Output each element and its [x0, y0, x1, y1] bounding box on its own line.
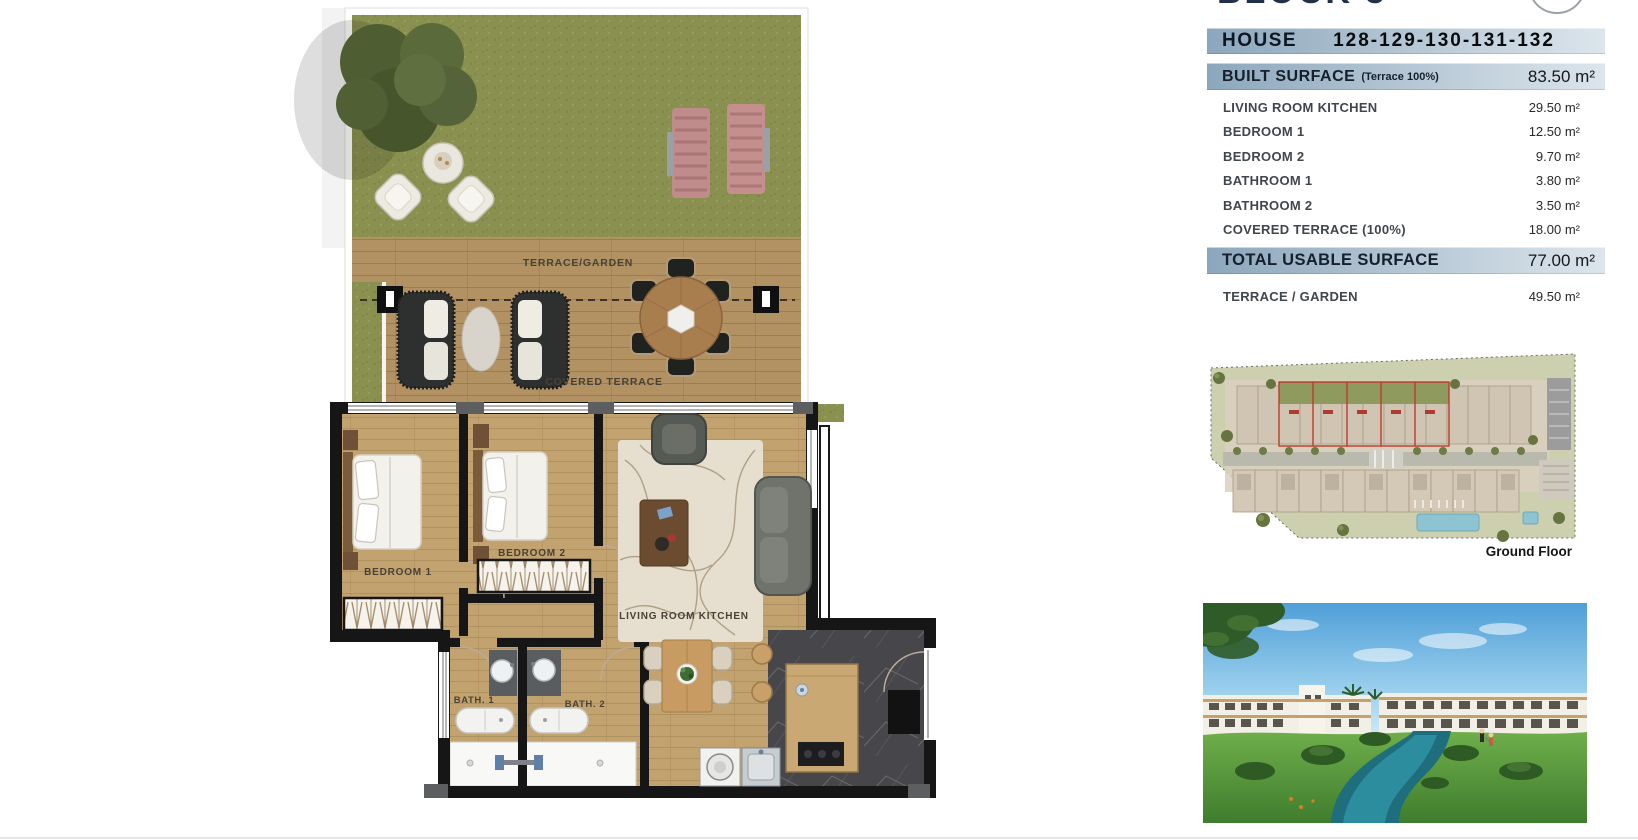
row-label: COVERED TERRACE (100%)	[1223, 222, 1406, 237]
compass-icon	[1528, 0, 1586, 14]
house-header-bar: HOUSE 128-129-130-131-132	[1207, 28, 1605, 54]
block-title: BLOCK 3	[1217, 0, 1387, 12]
row-label: BEDROOM 2	[1223, 149, 1304, 164]
row-label: BATHROOM 2	[1223, 198, 1312, 213]
row-value: 12.50 m²	[1529, 124, 1580, 139]
row-value: 9.70 m²	[1536, 149, 1580, 164]
built-surface-note: (Terrace 100%)	[1361, 71, 1438, 83]
terrace-garden-label: TERRACE/GARDEN	[523, 257, 633, 269]
surface-row: BATHROOM 1 3.80 m²	[1207, 169, 1590, 194]
row-value: 3.80 m²	[1536, 173, 1580, 188]
row-value: 29.50 m²	[1529, 100, 1580, 115]
surface-row: LIVING ROOM KITCHEN 29.50 m²	[1207, 95, 1590, 120]
bath-2-label: BATH. 2	[565, 699, 605, 710]
surface-table-panel: BLOCK 3 HOUSE 128-129-130-131-132 BUILT …	[1207, 0, 1590, 600]
surface-row: BEDROOM 2 9.70 m²	[1207, 144, 1590, 169]
surface-row: BEDROOM 1 12.50 m²	[1207, 120, 1590, 145]
site-top-row	[1237, 382, 1531, 446]
surface-row: COVERED TERRACE (100%) 18.00 m²	[1207, 218, 1590, 243]
bedroom-2-label: BEDROOM 2	[498, 548, 566, 559]
wardrobe-1	[344, 598, 442, 630]
row-value: 18.00 m²	[1529, 222, 1580, 237]
coffee-table	[640, 500, 688, 566]
total-value: 77.00 m²	[1528, 251, 1605, 271]
built-surface-value: 83.50 m²	[1528, 67, 1605, 87]
bedroom-1-label: BEDROOM 1	[364, 567, 432, 578]
built-surface-label: BUILT SURFACE	[1222, 68, 1355, 86]
built-surface-bar: BUILT SURFACE (Terrace 100%) 83.50 m²	[1207, 63, 1605, 90]
site-plan	[1203, 340, 1593, 546]
oven	[888, 690, 920, 734]
terrace-garden-row: TERRACE / GARDEN 49.50 m²	[1207, 285, 1590, 307]
surface-row: BATHROOM 2 3.50 m²	[1207, 193, 1590, 218]
pool	[1417, 514, 1479, 531]
floor-plan: TERRACE/GARDEN COVERED TERRACE	[0, 0, 960, 840]
total-label: TOTAL USABLE SURFACE	[1222, 251, 1439, 270]
row-label: LIVING ROOM KITCHEN	[1223, 100, 1377, 115]
sink-washer	[700, 748, 780, 786]
house-numbers: 128-129-130-131-132	[1333, 30, 1555, 52]
row-value: 3.50 m²	[1536, 198, 1580, 213]
row-value: 49.50 m²	[1529, 289, 1580, 304]
row-label: TERRACE / GARDEN	[1223, 289, 1358, 304]
room-surface-rows: LIVING ROOM KITCHEN 29.50 m² BEDROOM 1 1…	[1207, 95, 1590, 242]
covered-terrace-label: COVERED TERRACE	[545, 376, 663, 388]
ground-floor-caption: Ground Floor	[1486, 544, 1572, 559]
bath-1-label: BATH. 1	[454, 695, 495, 706]
wardrobe-2	[478, 560, 590, 592]
brochure-page: TERRACE/GARDEN COVERED TERRACE	[0, 0, 1638, 840]
row-label: BEDROOM 1	[1223, 124, 1304, 139]
total-surface-bar: TOTAL USABLE SURFACE 77.00 m²	[1207, 247, 1605, 274]
terrace-garden-area: TERRACE/GARDEN COVERED TERRACE	[294, 8, 808, 406]
page-bottom-divider	[0, 837, 1638, 839]
house-label: HOUSE	[1222, 30, 1297, 52]
golf-resort-photo	[1203, 603, 1587, 823]
row-label: BATHROOM 1	[1223, 173, 1312, 188]
living-room-label: LIVING ROOM KITCHEN	[619, 611, 749, 622]
